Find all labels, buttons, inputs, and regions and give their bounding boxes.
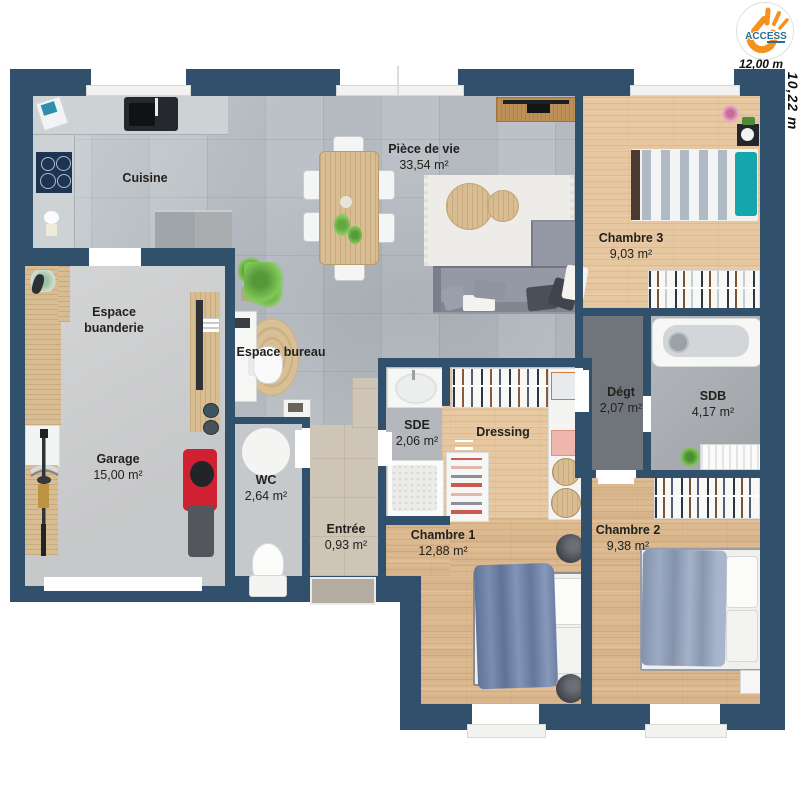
svg-text:ACCESS: ACCESS <box>745 31 787 42</box>
